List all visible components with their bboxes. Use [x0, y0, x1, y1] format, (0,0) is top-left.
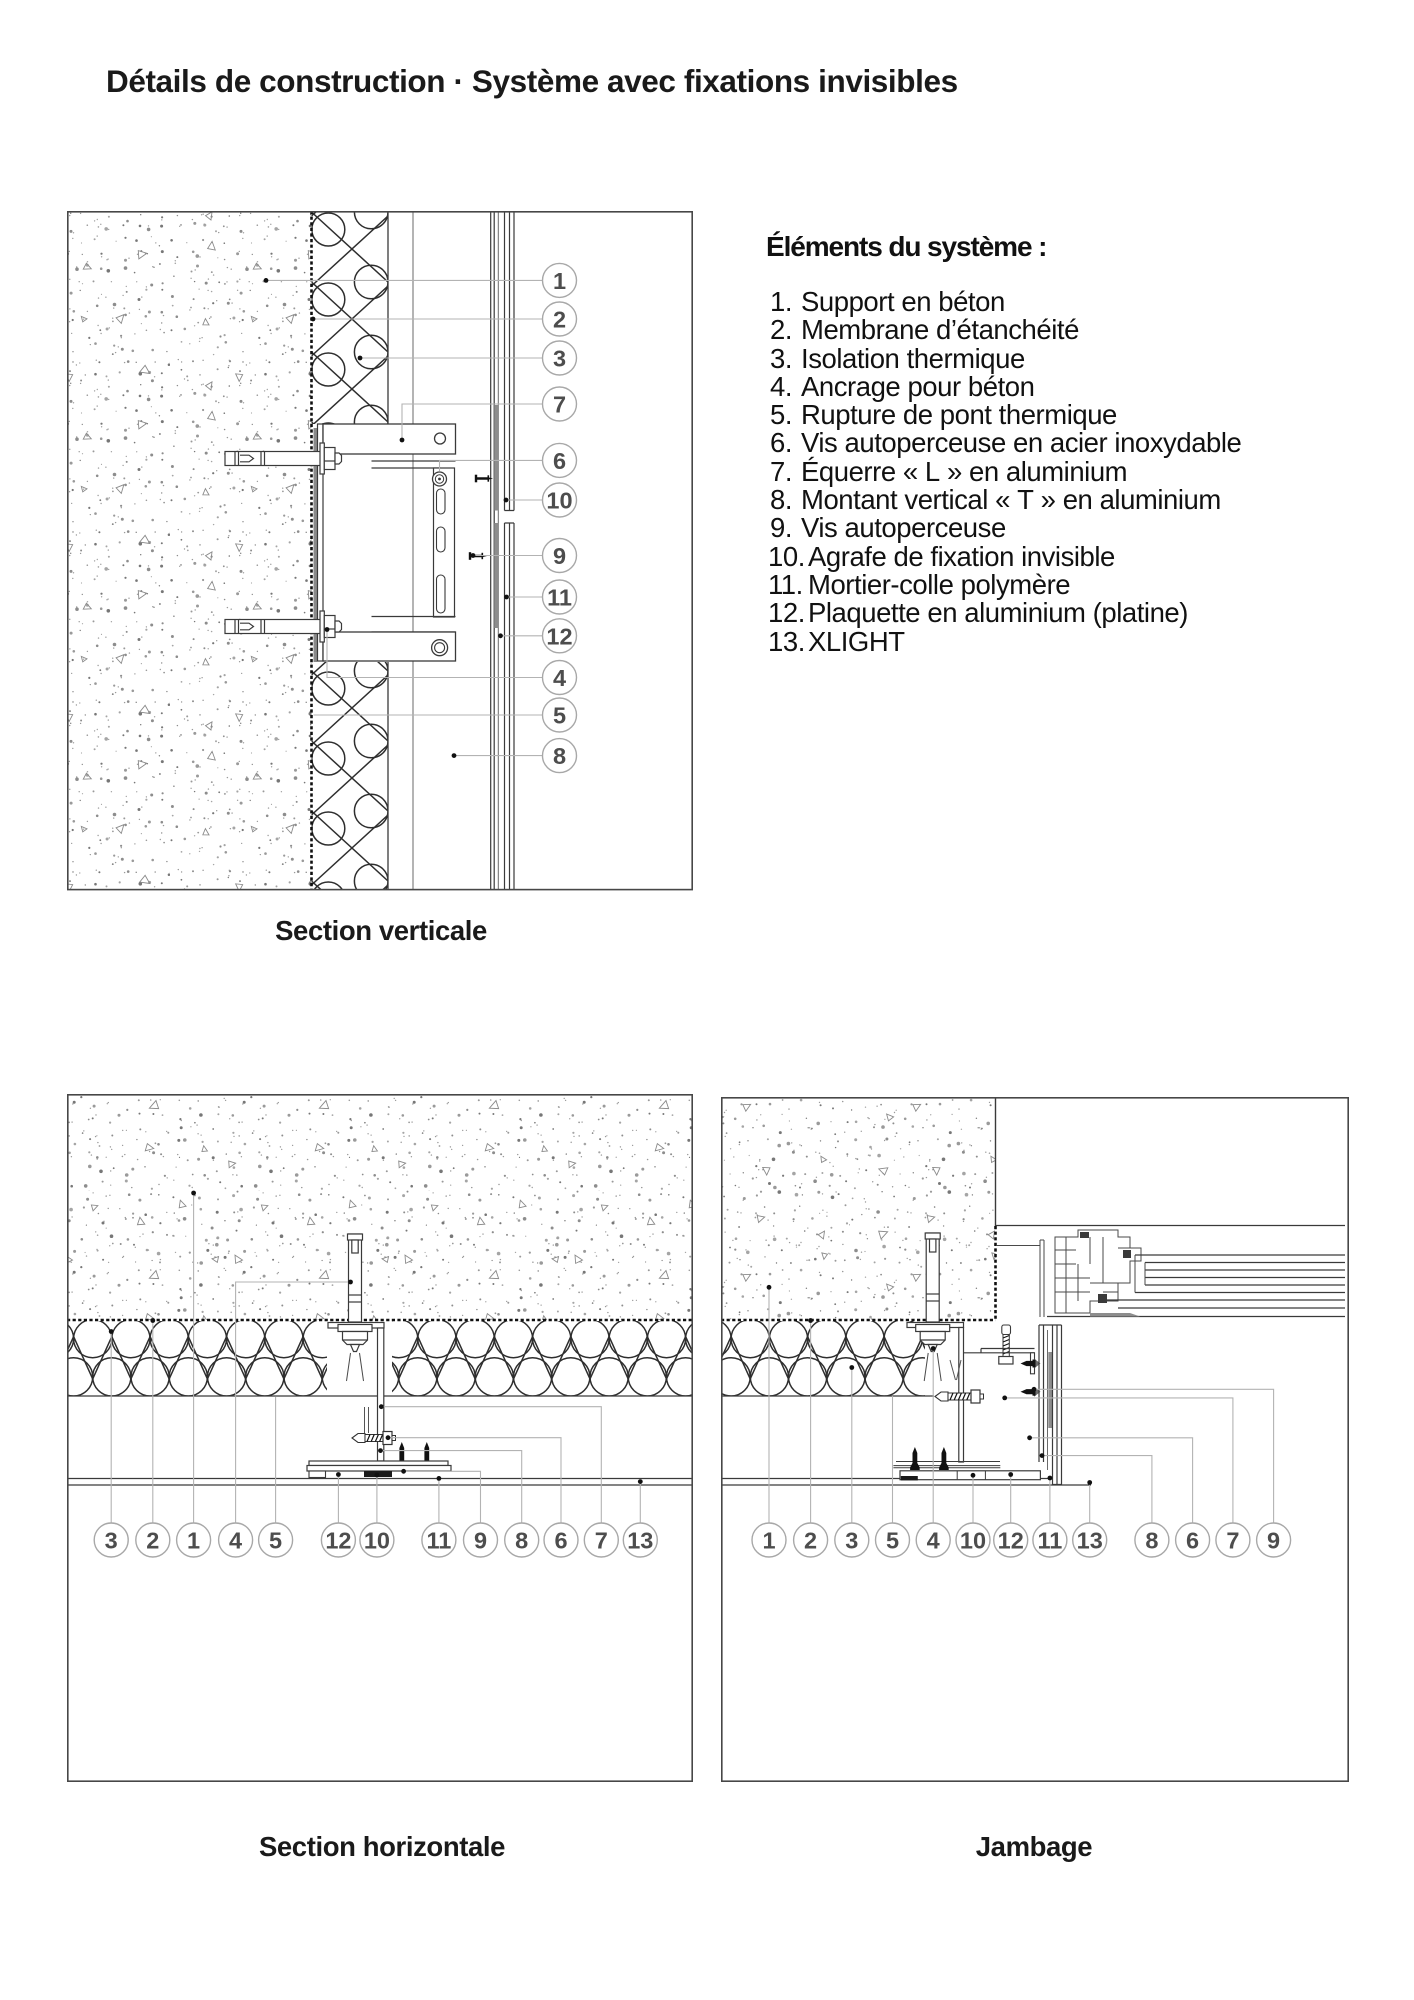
svg-text:9: 9: [1267, 1528, 1280, 1554]
svg-text:5: 5: [553, 703, 566, 729]
svg-text:10: 10: [364, 1528, 390, 1554]
svg-text:5: 5: [269, 1528, 282, 1554]
svg-text:1: 1: [762, 1528, 775, 1554]
svg-text:4: 4: [553, 665, 566, 691]
svg-text:3: 3: [845, 1528, 858, 1554]
svg-text:4: 4: [229, 1528, 242, 1554]
svg-text:2: 2: [146, 1528, 159, 1554]
svg-text:8: 8: [1145, 1528, 1158, 1554]
svg-text:12: 12: [546, 623, 572, 649]
svg-text:7: 7: [553, 392, 566, 418]
svg-text:1: 1: [187, 1528, 200, 1554]
svg-text:2: 2: [804, 1528, 817, 1554]
svg-text:6: 6: [1186, 1528, 1199, 1554]
svg-text:9: 9: [474, 1528, 487, 1554]
svg-text:9: 9: [553, 543, 566, 569]
svg-text:12: 12: [325, 1528, 351, 1554]
svg-text:7: 7: [1226, 1528, 1239, 1554]
svg-text:11: 11: [547, 585, 572, 611]
svg-text:13: 13: [627, 1528, 653, 1554]
svg-text:10: 10: [960, 1528, 986, 1554]
svg-text:8: 8: [553, 743, 566, 769]
svg-text:3: 3: [105, 1528, 118, 1554]
svg-text:10: 10: [546, 488, 572, 514]
svg-text:2: 2: [553, 307, 566, 333]
svg-text:3: 3: [553, 346, 566, 372]
svg-text:1: 1: [553, 268, 566, 294]
svg-text:6: 6: [553, 448, 566, 474]
svg-text:6: 6: [554, 1528, 567, 1554]
svg-text:11: 11: [426, 1528, 451, 1554]
svg-text:12: 12: [998, 1528, 1024, 1554]
svg-text:7: 7: [595, 1528, 608, 1554]
svg-text:11: 11: [1037, 1528, 1062, 1554]
svg-text:13: 13: [1077, 1528, 1103, 1554]
svg-text:8: 8: [515, 1528, 528, 1554]
svg-text:5: 5: [886, 1528, 899, 1554]
svg-text:4: 4: [927, 1528, 940, 1554]
